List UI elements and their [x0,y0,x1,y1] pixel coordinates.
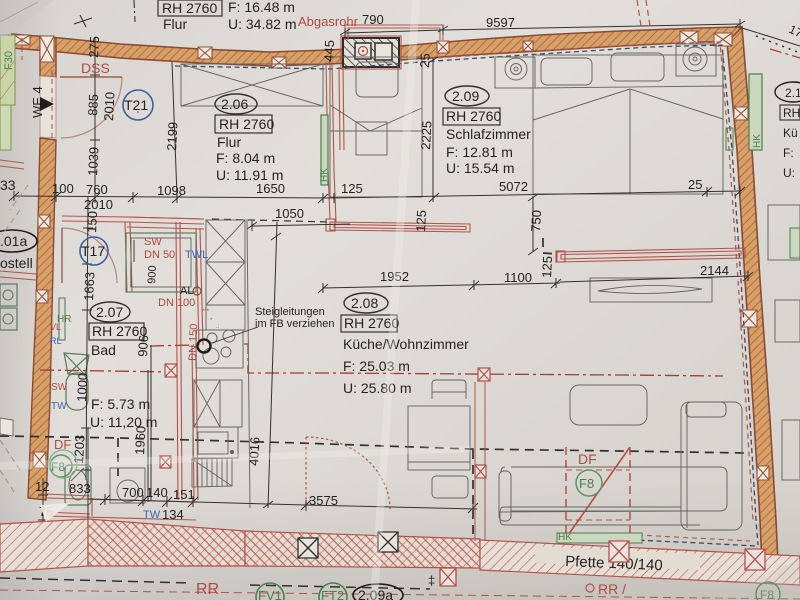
svg-text:125: 125 [413,210,429,232]
svg-text:140: 140 [146,485,168,500]
svg-text:F: 8.04 m: F: 8.04 m [216,150,275,166]
svg-text:U: 34.82 m: U: 34.82 m [228,16,296,32]
svg-text:2225: 2225 [418,120,434,150]
svg-text:U: 15.54 m: U: 15.54 m [446,160,514,176]
svg-text:HK: HK [319,168,330,182]
svg-text:DN 150: DN 150 [187,323,200,361]
svg-text:T21: T21 [124,97,148,113]
svg-text:F: 25.03 m: F: 25.03 m [343,358,410,374]
svg-text:1050: 1050 [275,206,304,221]
svg-text:125: 125 [539,256,555,278]
svg-text:1650: 1650 [256,181,285,196]
svg-text:2199: 2199 [164,121,180,151]
svg-text:F8: F8 [579,476,594,491]
svg-text:SW: SW [51,382,68,393]
svg-text:4016: 4016 [246,436,262,466]
svg-text:RR /: RR / [598,581,626,597]
svg-text:Küche/Wohnzimmer: Küche/Wohnzimmer [343,336,469,352]
svg-text:150: 150 [84,211,100,233]
svg-text:RH: RH [783,106,800,120]
svg-text:2010: 2010 [84,197,113,212]
svg-text:RL: RL [50,336,62,346]
svg-text:F:: F: [783,146,794,160]
svg-text:151: 151 [173,487,195,502]
svg-text:DN 50: DN 50 [144,249,175,261]
svg-text:F30: F30 [3,51,15,70]
svg-text:5072: 5072 [499,179,528,194]
svg-text:F: 5.73 m: F: 5.73 m [91,396,150,412]
svg-text:Abgasrohr: Abgasrohr [298,14,359,29]
svg-text:U: 25.80 m: U: 25.80 m [343,380,411,396]
svg-text:im FB verziehen: im FB verziehen [255,318,334,330]
svg-text:TW: TW [143,509,161,521]
svg-text:3575: 3575 [309,493,338,508]
svg-text:HR: HR [57,314,71,325]
svg-text:RH 2760: RH 2760 [92,323,147,339]
svg-text:DN 100: DN 100 [158,297,195,309]
svg-text:.01a: .01a [0,233,27,249]
svg-text:2.07: 2.07 [96,304,123,320]
svg-text:AL: AL [180,285,193,297]
svg-text:2.06: 2.06 [221,96,248,112]
svg-text:Bad: Bad [91,342,116,358]
svg-text:2010: 2010 [101,91,117,121]
svg-text:700: 700 [122,485,144,500]
svg-text:33: 33 [0,177,16,193]
svg-text:2.09: 2.09 [452,88,479,104]
svg-text:790: 790 [362,12,384,27]
svg-text:TWL: TWL [185,249,208,261]
svg-text:Steigleitungen: Steigleitungen [255,306,325,318]
svg-text:U: 11,20 m: U: 11,20 m [90,414,157,430]
svg-text:SW: SW [144,236,162,248]
svg-text:TW: TW [51,401,67,412]
svg-text:9597: 9597 [486,15,515,30]
svg-text:FT2: FT2 [321,588,344,600]
svg-text:445: 445 [321,40,337,62]
svg-text:F: 12.81 m: F: 12.81 m [446,144,513,160]
svg-text:ostell: ostell [0,255,33,271]
svg-text:1098: 1098 [157,183,186,198]
svg-text:***: *** [202,309,210,315]
svg-text:RH 2760: RH 2760 [219,116,274,132]
svg-text:1663: 1663 [81,271,97,301]
svg-text:750: 750 [528,210,544,232]
svg-text:1000: 1000 [74,372,90,402]
svg-text:Schlafzimmer: Schlafzimmer [446,126,531,142]
svg-text:DSS: DSS [81,60,110,76]
svg-text:1039: 1039 [85,146,101,176]
svg-text:25: 25 [688,177,702,192]
svg-text:DF: DF [578,451,597,467]
svg-text:760: 760 [86,182,108,197]
svg-text:HK: HK [558,532,572,543]
svg-text:F: 16.48 m: F: 16.48 m [228,0,295,15]
svg-text:2.1: 2.1 [785,86,800,100]
svg-text:885: 885 [85,94,101,116]
svg-text:FV1: FV1 [258,588,282,600]
svg-text:25: 25 [417,53,433,68]
svg-text:833: 833 [69,481,91,496]
svg-text:2144: 2144 [700,263,729,278]
svg-text:125: 125 [341,181,363,196]
svg-text:U:: U: [783,166,795,180]
svg-text:900: 900 [146,265,159,284]
svg-text:Flur: Flur [163,16,187,32]
svg-text:100: 100 [52,181,74,196]
svg-text:Flur: Flur [217,134,241,150]
svg-text:HK: HK [752,134,763,148]
svg-text:2.08: 2.08 [351,295,378,311]
svg-text:134: 134 [162,507,184,522]
svg-text:RR: RR [196,581,219,598]
svg-text:RH 2760: RH 2760 [446,108,501,124]
svg-text:1100: 1100 [504,270,532,285]
svg-text:U: 11.91 m: U: 11.91 m [216,167,283,183]
svg-text:.:: .: [216,324,220,330]
svg-text:Kü: Kü [783,126,798,140]
svg-text:RH 2760: RH 2760 [162,0,217,16]
svg-text:T17: T17 [81,243,105,259]
svg-text:275: 275 [86,36,102,58]
svg-text:‡: ‡ [428,573,435,588]
svg-text:12: 12 [35,479,49,494]
